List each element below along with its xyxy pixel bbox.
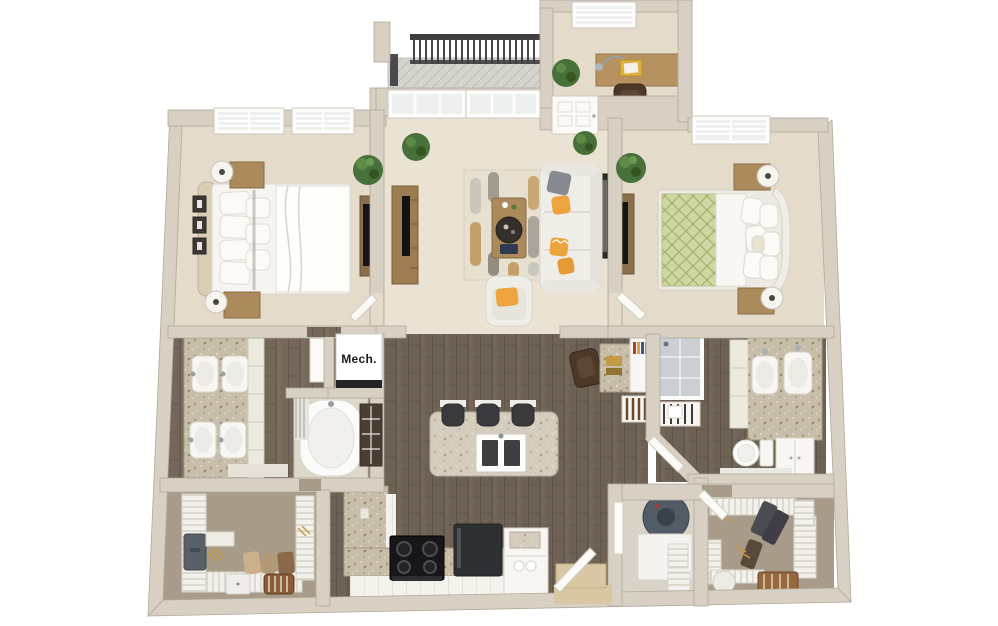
- plant-living-a: [402, 133, 430, 161]
- balcony-rail-left: [390, 54, 398, 86]
- slatted-bench: [658, 402, 700, 426]
- tv-1: [363, 204, 370, 266]
- striped-ottoman: [264, 574, 294, 594]
- wire-basket: [668, 544, 688, 568]
- tablet: [500, 244, 518, 254]
- floor-plan-3d: Mech.: [0, 0, 998, 626]
- folded-clothes-1: [243, 551, 262, 575]
- window-bed2: [692, 116, 770, 144]
- vanity-1-cabinets: [248, 338, 264, 478]
- nightstand-1a: [230, 162, 264, 188]
- tv: [402, 196, 410, 256]
- window-den: [572, 2, 636, 28]
- wall-bath1-closet1: [160, 478, 384, 492]
- bar-stools: [440, 400, 536, 426]
- bed-1-duvet: [276, 186, 350, 292]
- orange-pillow-3: [495, 287, 519, 307]
- orange-pillow-1: [551, 195, 571, 215]
- wall-balcony-stub: [374, 22, 390, 62]
- island-sink: [476, 434, 526, 473]
- bed-2-pillows: [740, 197, 780, 280]
- laundry-basket: [794, 500, 814, 526]
- window-bed1-a: [214, 108, 284, 134]
- dark-tile-panel: [360, 404, 382, 466]
- balcony-door: [552, 96, 598, 134]
- wall-bed2-bath2: [608, 326, 834, 338]
- outlet: [360, 508, 369, 519]
- glass-shower: [658, 336, 702, 398]
- plant-bed2: [616, 153, 646, 183]
- wall-closet1-kitchen: [316, 490, 330, 606]
- sectional-sofa: [540, 164, 602, 292]
- wall-stub-living-right: [560, 326, 610, 338]
- wall-tub-nook: [286, 388, 328, 398]
- orange-pillow-2: [557, 257, 576, 276]
- wall-hall-bath2: [646, 334, 660, 440]
- floor-plan-canvas: Mech.: [0, 0, 998, 626]
- round-tray: [496, 217, 522, 243]
- vanity-2-cabinets: [730, 340, 748, 428]
- bed-2-sheet: [716, 194, 746, 286]
- refrigerator: [454, 524, 502, 576]
- shower-head: [664, 342, 669, 347]
- laundry-closet: [638, 494, 692, 594]
- range-cooktop: [390, 536, 444, 581]
- coffee-table: [492, 198, 526, 258]
- window-living-a: [388, 90, 466, 118]
- gold-books: [606, 356, 622, 366]
- door-laundry: [614, 502, 623, 554]
- balcony-rail-bottom: [410, 60, 542, 64]
- cabinet-hutch: [504, 528, 548, 594]
- mechanical-closet: Mech.: [336, 334, 382, 388]
- wall-mech-bottom: [324, 388, 384, 398]
- armchair: [486, 276, 532, 326]
- shower-curtain: [294, 396, 309, 440]
- wall-den-right: [678, 0, 692, 122]
- mech-label: Mech.: [341, 352, 377, 366]
- gray-pillow: [546, 170, 572, 196]
- bath-mat-1: [228, 464, 288, 477]
- bed-2-green-duvet: [662, 194, 716, 286]
- toilet: [733, 440, 773, 466]
- wire-shelf-right: [296, 496, 314, 580]
- wall-art-frames: [193, 196, 206, 254]
- wall-den-left: [540, 8, 553, 108]
- chevron-pillow: [549, 237, 569, 257]
- window-bed1-b: [292, 108, 354, 134]
- balcony: [388, 34, 542, 92]
- nightstand-1b: [224, 292, 260, 318]
- tub-faucet: [328, 401, 334, 407]
- plant-bed1: [353, 155, 383, 185]
- window-living-b: [466, 90, 540, 118]
- wall-laundry-top: [608, 484, 708, 500]
- plant-living-b: [573, 131, 597, 155]
- plant-den: [552, 59, 580, 87]
- shelf-board: [206, 532, 234, 546]
- opening-closet1: [299, 479, 321, 491]
